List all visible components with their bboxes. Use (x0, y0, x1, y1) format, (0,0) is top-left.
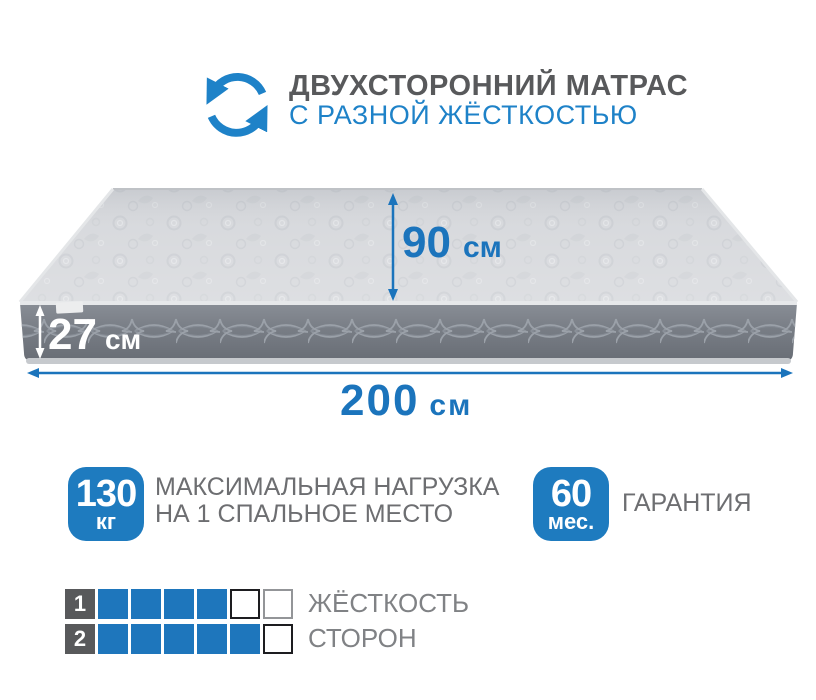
firmness-cell-filled (230, 624, 260, 654)
firmness-cell-filled (131, 624, 161, 654)
firmness-section: 1 ЖЁСТКОСТЬ 2 СТОРОН (65, 588, 469, 658)
max-load-unit: кг (68, 511, 144, 532)
firmness-cell-filled (197, 589, 227, 619)
firmness-cell-filled (131, 589, 161, 619)
firmness-cell-filled (98, 589, 128, 619)
firmness-cell-filled (164, 589, 194, 619)
firmness-cell-filled (197, 624, 227, 654)
warranty-label: ГАРАНТИЯ (622, 490, 752, 517)
max-load-label: МАКСИМАЛЬНАЯ НАГРУЗКА НА 1 СПАЛЬНОЕ МЕСТ… (155, 474, 499, 528)
max-load-label-line2: НА 1 СПАЛЬНОЕ МЕСТО (155, 501, 499, 528)
firmness-cell-empty-light (263, 589, 293, 619)
warranty-badge: 60 мес. (533, 467, 609, 541)
max-load-badge: 130 кг (68, 467, 144, 541)
max-load-label-line1: МАКСИМАЛЬНАЯ НАГРУЗКА (155, 474, 499, 501)
rotate-arrows-icon (193, 60, 281, 148)
arrow-right-icon (781, 368, 793, 378)
max-load-value: 130 (68, 477, 144, 511)
mattress-diagram: 90см 27см 200см (0, 175, 816, 430)
product-title: ДВУХСТОРОННИЙ МАТРАС (289, 70, 688, 103)
length-label: 200см (340, 376, 472, 425)
warranty-unit: мес. (533, 511, 609, 532)
product-subtitle: С РАЗНОЙ ЖЁСТКОСТЬЮ (289, 100, 638, 131)
firmness-cell-filled (164, 624, 194, 654)
arrow-left-icon (27, 368, 39, 378)
firmness-cell-filled (98, 624, 128, 654)
firmness-cell-empty-dark (263, 624, 293, 654)
firmness-row-number: 2 (65, 624, 95, 654)
firmness-scale-row-2 (98, 624, 293, 654)
firmness-row-2: 2 СТОРОН (65, 623, 469, 654)
mattress-infographic: ДВУХСТОРОННИЙ МАТРАС С РАЗНОЙ ЖЁСТКОСТЬЮ (0, 0, 816, 700)
firmness-scale-row-1 (98, 589, 293, 619)
length-dimension: 200см (27, 368, 793, 425)
warranty-value: 60 (533, 477, 609, 511)
firmness-row-1: 1 ЖЁСТКОСТЬ (65, 588, 469, 619)
firmness-row-number: 1 (65, 589, 95, 619)
firmness-label-line2: СТОРОН (308, 623, 417, 654)
firmness-cell-empty-dark (230, 589, 260, 619)
firmness-label-line1: ЖЁСТКОСТЬ (308, 588, 469, 619)
